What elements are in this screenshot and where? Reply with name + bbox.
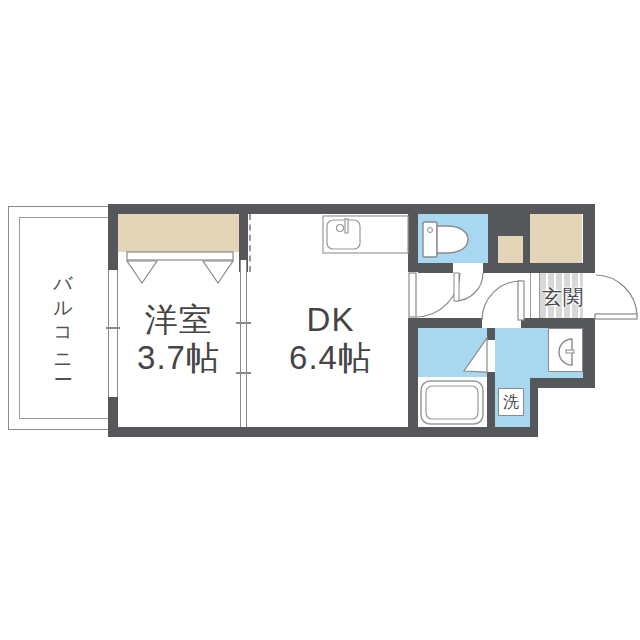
wall bbox=[530, 378, 538, 437]
wall bbox=[108, 204, 595, 214]
wall bbox=[583, 204, 595, 273]
wall bbox=[521, 318, 583, 328]
wall bbox=[483, 263, 595, 273]
wall bbox=[108, 214, 118, 270]
washbasin-counter bbox=[548, 328, 583, 372]
toilet-door bbox=[454, 273, 483, 301]
dk-label: DK 6.4帖 bbox=[253, 301, 408, 377]
hall-closet-small bbox=[498, 236, 523, 263]
western-room-closet bbox=[118, 213, 239, 252]
bathtub-icon bbox=[421, 381, 483, 424]
toilet-room bbox=[418, 213, 488, 263]
western-room-name: 洋室 bbox=[118, 301, 239, 339]
washroom-door bbox=[482, 281, 524, 320]
washroom-upper bbox=[495, 328, 548, 378]
wall bbox=[108, 427, 538, 437]
dk-area: 6.4帖 bbox=[253, 339, 408, 377]
genkan-label: 玄関 bbox=[538, 284, 588, 311]
wall bbox=[408, 318, 482, 328]
wall bbox=[498, 214, 523, 236]
sliding-partition bbox=[240, 260, 247, 427]
entrance-door-icon bbox=[595, 275, 637, 319]
wall bbox=[418, 263, 453, 273]
wall bbox=[408, 204, 418, 272]
dk-name: DK bbox=[253, 301, 408, 339]
wall bbox=[487, 328, 495, 340]
balcony-label: バルコニー bbox=[50, 243, 76, 393]
hanging-wall-dashed-line bbox=[249, 214, 251, 272]
wall bbox=[487, 372, 495, 427]
dk-door bbox=[409, 273, 460, 317]
floor-plan: バルコニー 洋室 3.7帖 DK 6.4帖 玄関 洗 bbox=[0, 0, 640, 640]
closet-front bbox=[127, 252, 233, 260]
western-room-area: 3.7帖 bbox=[118, 339, 239, 377]
laundry-label: 洗 bbox=[498, 388, 524, 416]
wall bbox=[408, 318, 418, 437]
wall bbox=[530, 378, 595, 388]
western-room-label: 洋室 3.7帖 bbox=[118, 301, 239, 377]
kitchen-sink-icon bbox=[323, 216, 408, 253]
bathroom bbox=[418, 328, 487, 377]
closet-door-icon bbox=[127, 261, 233, 283]
balcony-window bbox=[108, 270, 118, 397]
hall-closet-large bbox=[530, 213, 582, 263]
